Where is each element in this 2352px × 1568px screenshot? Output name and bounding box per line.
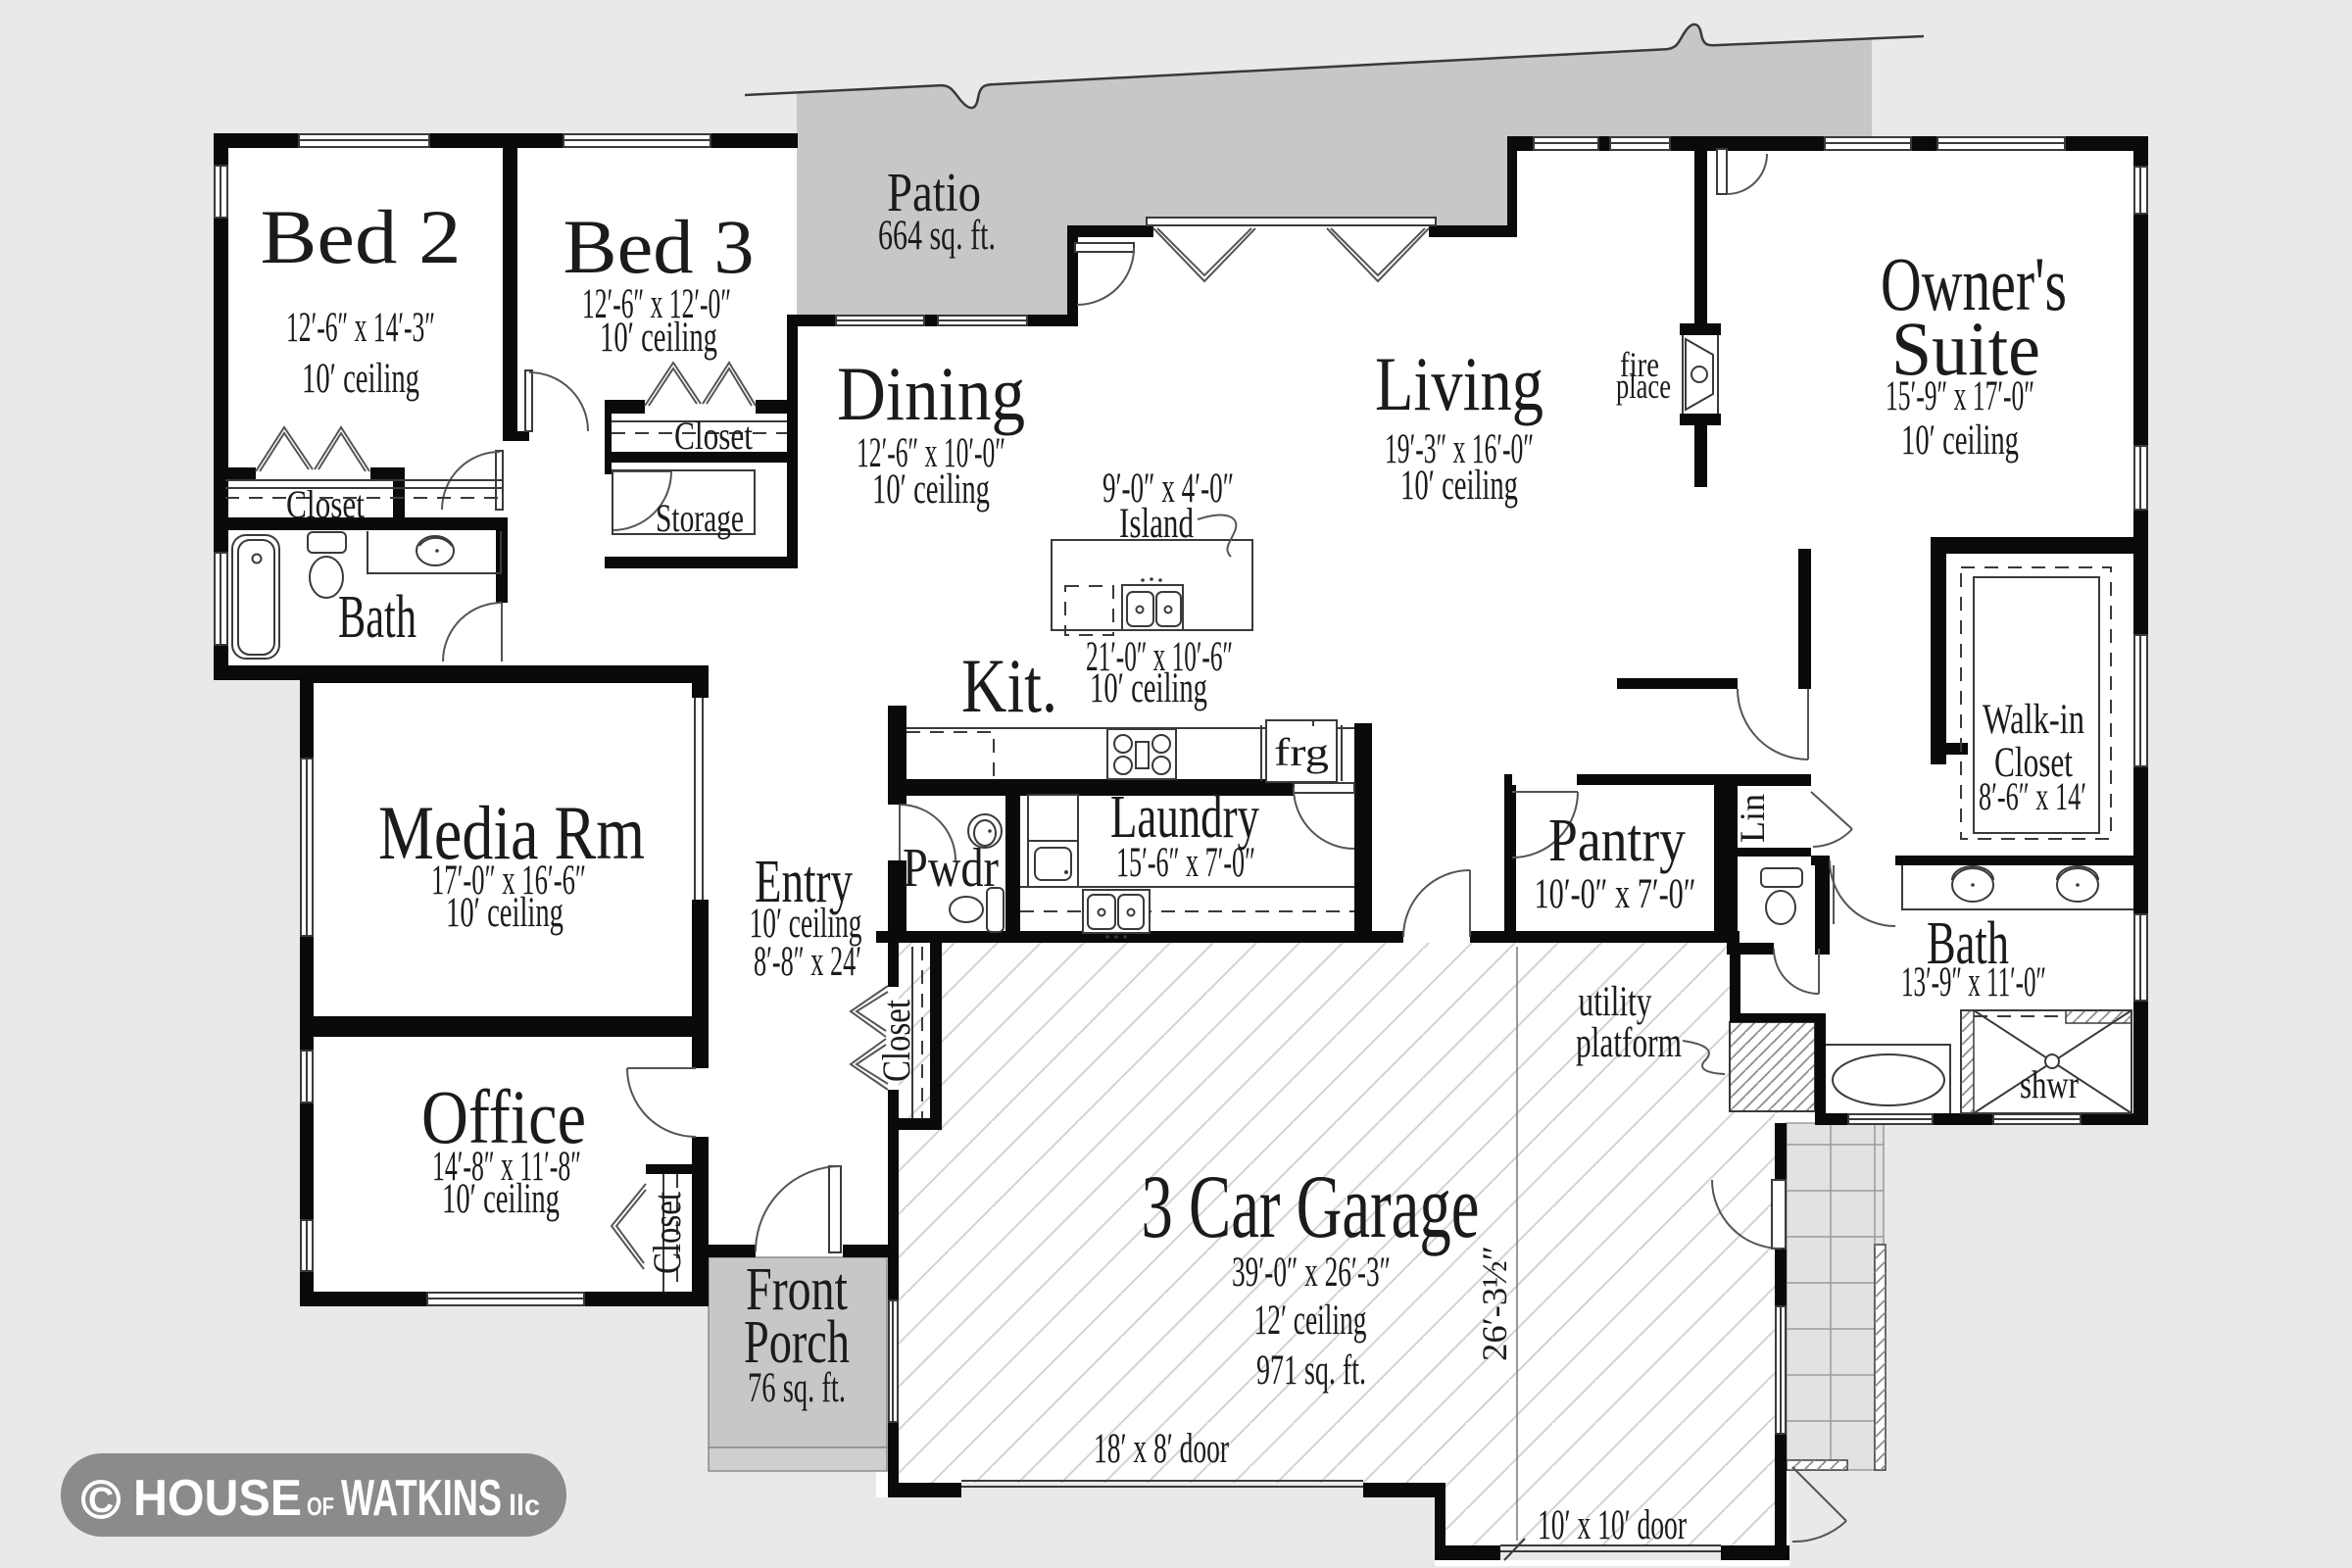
svg-text:llc: llc: [509, 1490, 540, 1522]
svg-text:Walk-in: Walk-in: [1983, 697, 2084, 743]
svg-text:13′-9″ x 11′-0″: 13′-9″ x 11′-0″: [1901, 959, 2046, 1005]
svg-text:Closet: Closet: [874, 1000, 918, 1082]
svg-text:platform: platform: [1576, 1020, 1682, 1066]
svg-text:10′ ceiling: 10′ ceiling: [600, 315, 717, 361]
svg-text:Island: Island: [1119, 501, 1194, 547]
svg-text:HOUSE: HOUSE: [133, 1470, 302, 1527]
svg-text:C: C: [88, 1480, 114, 1520]
svg-text:Bed 2: Bed 2: [261, 194, 462, 279]
svg-text:10′ ceiling: 10′ ceiling: [872, 466, 990, 513]
svg-text:Closet: Closet: [645, 1192, 689, 1274]
svg-text:8′-8″ x 24′: 8′-8″ x 24′: [754, 939, 861, 985]
svg-text:Lin: Lin: [1733, 794, 1772, 843]
svg-text:76 sq. ft.: 76 sq. ft.: [748, 1365, 846, 1411]
svg-text:Pwdr: Pwdr: [903, 838, 999, 899]
svg-text:Dining: Dining: [837, 351, 1025, 436]
svg-text:10′ ceiling: 10′ ceiling: [442, 1176, 560, 1222]
svg-text:10′ ceiling: 10′ ceiling: [302, 356, 419, 402]
svg-text:Closet: Closet: [286, 482, 365, 526]
svg-text:15′-6″ x 7′-0″: 15′-6″ x 7′-0″: [1116, 840, 1255, 886]
svg-text:8′-6″ x 14′: 8′-6″ x 14′: [1979, 774, 2086, 818]
svg-text:664 sq. ft.: 664 sq. ft.: [878, 213, 996, 259]
svg-text:Bed 3: Bed 3: [563, 204, 755, 289]
svg-text:10′ ceiling: 10′ ceiling: [1901, 417, 2019, 464]
svg-text:39′-0″ x 26′-3″: 39′-0″ x 26′-3″: [1232, 1249, 1391, 1296]
svg-text:26′-3½″: 26′-3½″: [1475, 1246, 1514, 1361]
svg-text:Pantry: Pantry: [1548, 808, 1686, 874]
svg-text:shwr: shwr: [2020, 1062, 2079, 1106]
svg-text:frg: frg: [1274, 730, 1329, 774]
svg-text:Living: Living: [1375, 341, 1543, 426]
svg-text:utility: utility: [1579, 979, 1652, 1025]
svg-text:10′ ceiling: 10′ ceiling: [446, 890, 563, 936]
svg-text:971 sq. ft.: 971 sq. ft.: [1256, 1347, 1366, 1394]
svg-text:10′ ceiling: 10′ ceiling: [1400, 463, 1518, 509]
svg-text:OF: OF: [307, 1492, 334, 1521]
svg-text:Bath: Bath: [338, 584, 416, 651]
svg-text:10′-0″ x 7′-0″: 10′-0″ x 7′-0″: [1535, 871, 1696, 917]
svg-text:Closet: Closet: [674, 414, 753, 458]
svg-text:WATKINS: WATKINS: [341, 1470, 502, 1527]
svg-text:10′ ceiling: 10′ ceiling: [1090, 665, 1207, 711]
svg-text:15′-9″ x 17′-0″: 15′-9″ x 17′-0″: [1886, 373, 2034, 419]
svg-text:10′ x 10′ door: 10′ x 10′ door: [1538, 1502, 1687, 1548]
svg-text:Kit.: Kit.: [961, 643, 1057, 728]
svg-text:12′ ceiling: 12′ ceiling: [1254, 1298, 1367, 1344]
svg-text:12′-6″ x 14′-3″: 12′-6″ x 14′-3″: [286, 305, 435, 351]
svg-text:18′ x 8′ door: 18′ x 8′ door: [1094, 1426, 1229, 1472]
svg-text:Storage: Storage: [656, 496, 744, 540]
svg-text:3 Car Garage: 3 Car Garage: [1142, 1156, 1480, 1256]
svg-text:place: place: [1616, 367, 1671, 406]
